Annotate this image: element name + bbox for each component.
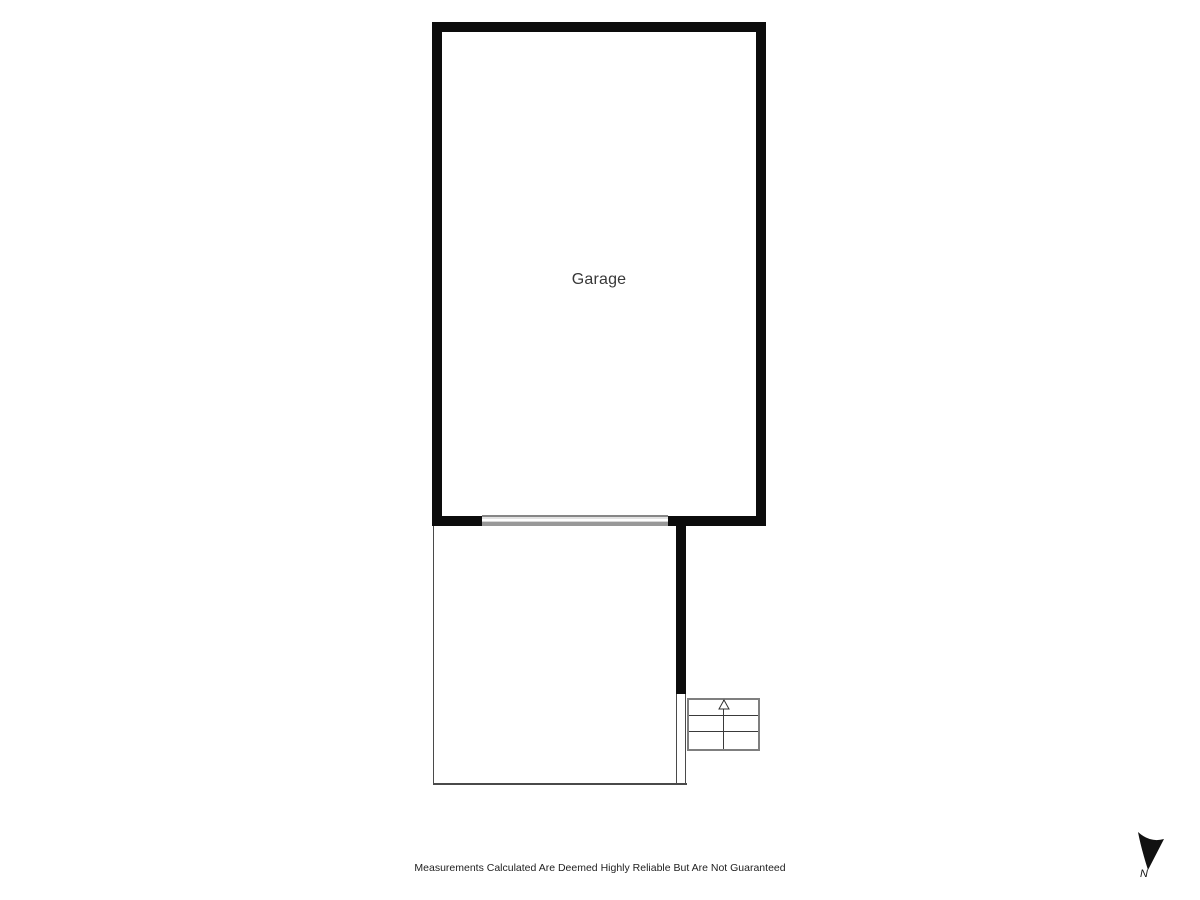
garage-top-wall xyxy=(432,22,766,32)
stairs xyxy=(687,698,760,751)
garage-bottom-wall-left-stub xyxy=(432,516,482,526)
lower-room-left-wall xyxy=(433,526,434,784)
floorplan-canvas: Garage Measurements Calculated Are Deeme… xyxy=(0,0,1200,900)
north-arrow-icon xyxy=(1130,824,1174,874)
garage-room-label: Garage xyxy=(442,271,756,289)
garage-right-wall xyxy=(756,22,766,526)
garage-door xyxy=(482,515,668,526)
lower-room-right-thick-wall xyxy=(676,526,686,694)
lower-room-bottom-wall xyxy=(433,783,687,785)
garage-bottom-wall-right-stub xyxy=(668,516,766,526)
garage-left-wall xyxy=(432,22,442,526)
compass-north-label: N xyxy=(1132,868,1156,880)
lower-room-right-channel xyxy=(676,694,686,783)
disclaimer-text: Measurements Calculated Are Deemed Highl… xyxy=(0,862,1200,874)
stairs-up-arrow-icon xyxy=(717,699,731,711)
